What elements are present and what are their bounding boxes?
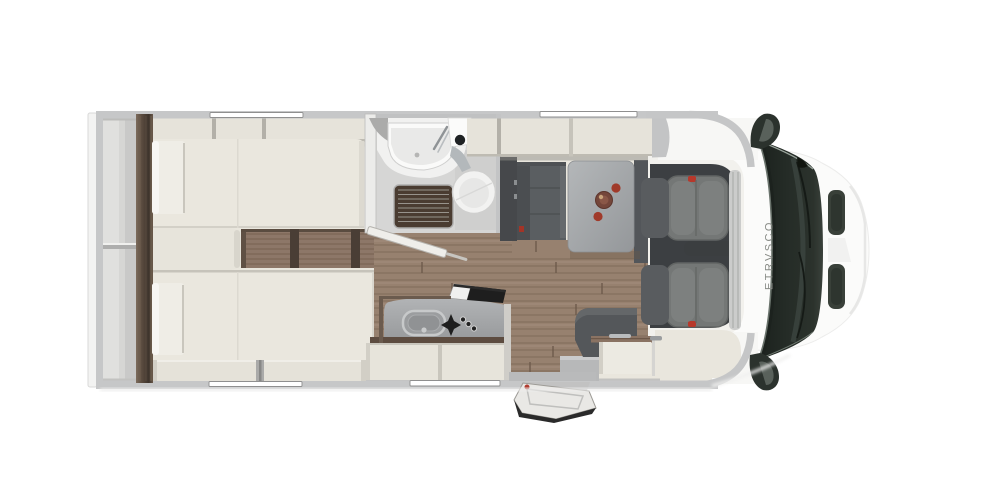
svg-text:ETRVSCO: ETRVSCO [764, 220, 776, 290]
